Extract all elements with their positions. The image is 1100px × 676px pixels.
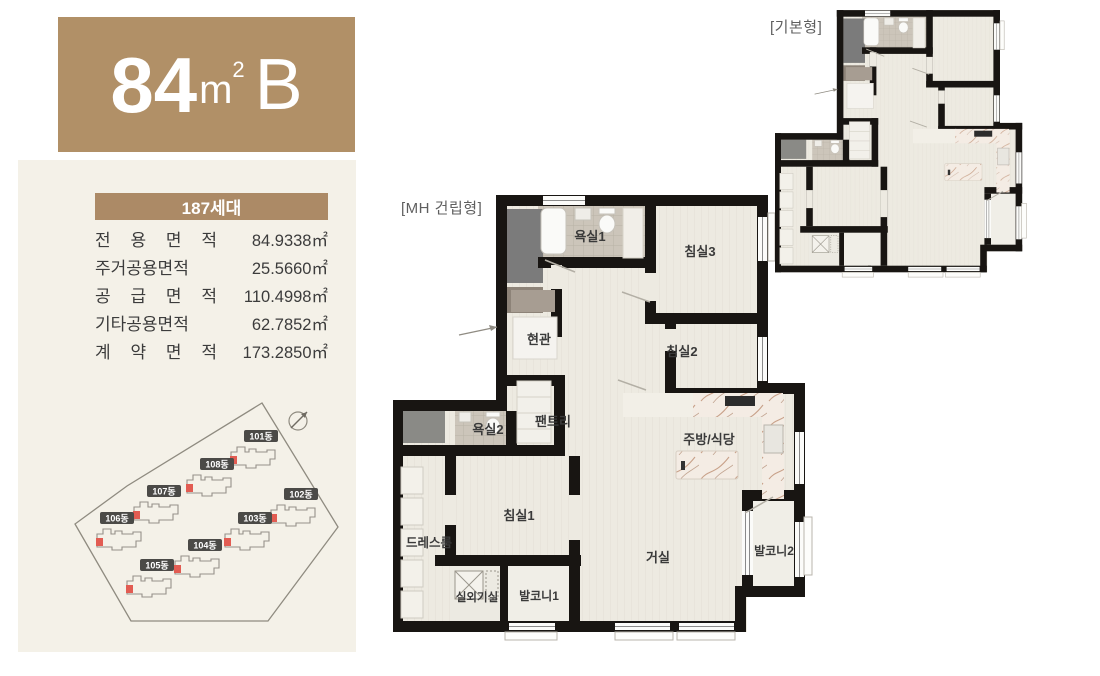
spec-label: 공 급 면 적: [95, 282, 217, 307]
room-label-living: 거실: [646, 550, 670, 565]
room-label-bed1: 침실1: [503, 508, 534, 523]
room-label-balcony1: 발코니1: [519, 588, 559, 603]
unit-title-card: 84m2B: [58, 17, 355, 152]
building-label: 102동: [289, 490, 312, 500]
area-spec-table: 전 용 면 적 84.9338㎡ 주거공용면적 25.5660㎡ 공 급 면 적…: [95, 226, 328, 366]
building-label: 103동: [243, 514, 266, 524]
table-row: 공 급 면 적 110.4998㎡: [95, 282, 328, 310]
building-108: 108동: [186, 458, 234, 496]
building-101: 101동: [230, 430, 278, 468]
unit-size-number: 84: [110, 46, 197, 124]
unit-marker: [174, 565, 181, 573]
basic-floorplan: [775, 10, 1027, 279]
unit-marker: [224, 538, 231, 546]
unit-marker: [133, 511, 140, 519]
building-label: 108동: [205, 460, 228, 470]
spec-label: 주거공용면적: [95, 254, 217, 279]
spec-value: 110.4998㎡: [217, 283, 328, 307]
room-label-entrance: 현관: [527, 332, 551, 347]
room-label-dressroom: 드레스룸: [406, 535, 453, 550]
info-panel: 187세대 전 용 면 적 84.9338㎡ 주거공용면적 25.5660㎡ 공…: [18, 160, 356, 652]
page: { "unit_card": { "size_number": "84", "s…: [0, 0, 1100, 676]
spec-value: 173.2850㎡: [217, 339, 328, 363]
room-label-bed3: 침실3: [684, 244, 715, 259]
spec-label: 계 약 면 적: [95, 338, 217, 363]
unit-marker: [96, 538, 103, 546]
table-row: 기타공용면적 62.7852㎡: [95, 310, 328, 338]
unit-marker: [126, 585, 133, 593]
site-plan: 101동 108동 107동 106동 102동: [55, 393, 355, 638]
spec-value: 62.7852㎡: [217, 311, 328, 335]
households-header: 187세대: [95, 193, 328, 220]
building-104: 104동: [174, 539, 222, 577]
room-label-kitchen: 주방/식당: [683, 432, 734, 447]
spec-label: 전 용 면 적: [95, 226, 217, 251]
table-row: 전 용 면 적 84.9338㎡: [95, 226, 328, 254]
building-label: 105동: [145, 561, 168, 571]
building-label: 107동: [152, 487, 175, 497]
building-label: 106동: [105, 514, 128, 524]
building-103: 103동: [224, 512, 272, 550]
unit-type-letter: B: [255, 49, 303, 121]
building-102: 102동: [270, 488, 318, 526]
unit-marker: [186, 484, 193, 492]
room-label-pantry: 팬트리: [535, 414, 571, 429]
room-label-bath1: 욕실1: [574, 229, 605, 244]
room-label-bed2: 침실2: [666, 344, 697, 359]
building-105: 105동: [126, 559, 174, 597]
table-row: 계 약 면 적 173.2850㎡: [95, 338, 328, 366]
spec-value: 25.5660㎡: [217, 255, 328, 279]
unit-size-superscript: 2: [232, 57, 244, 82]
room-label-outdoor-unit: 실외기실: [456, 590, 498, 604]
table-row: 주거공용면적 25.5660㎡: [95, 254, 328, 282]
room-label-bath2: 욕실2: [472, 422, 503, 437]
spec-label: 기타공용면적: [95, 310, 217, 335]
spec-value: 84.9338㎡: [217, 227, 328, 251]
building-label: 101동: [249, 432, 272, 442]
building-label: 104동: [193, 541, 216, 551]
main-floorplan: 욕실1 침실3 현관 침실2 팬트리 욕실2 주방/식당 드레스룸 침실1 거실…: [393, 195, 813, 643]
building-107: 107동: [133, 485, 181, 523]
compass-icon: [289, 412, 307, 430]
room-label-balcony2: 발코니2: [754, 543, 794, 558]
unit-size-unit: m2: [199, 59, 245, 110]
